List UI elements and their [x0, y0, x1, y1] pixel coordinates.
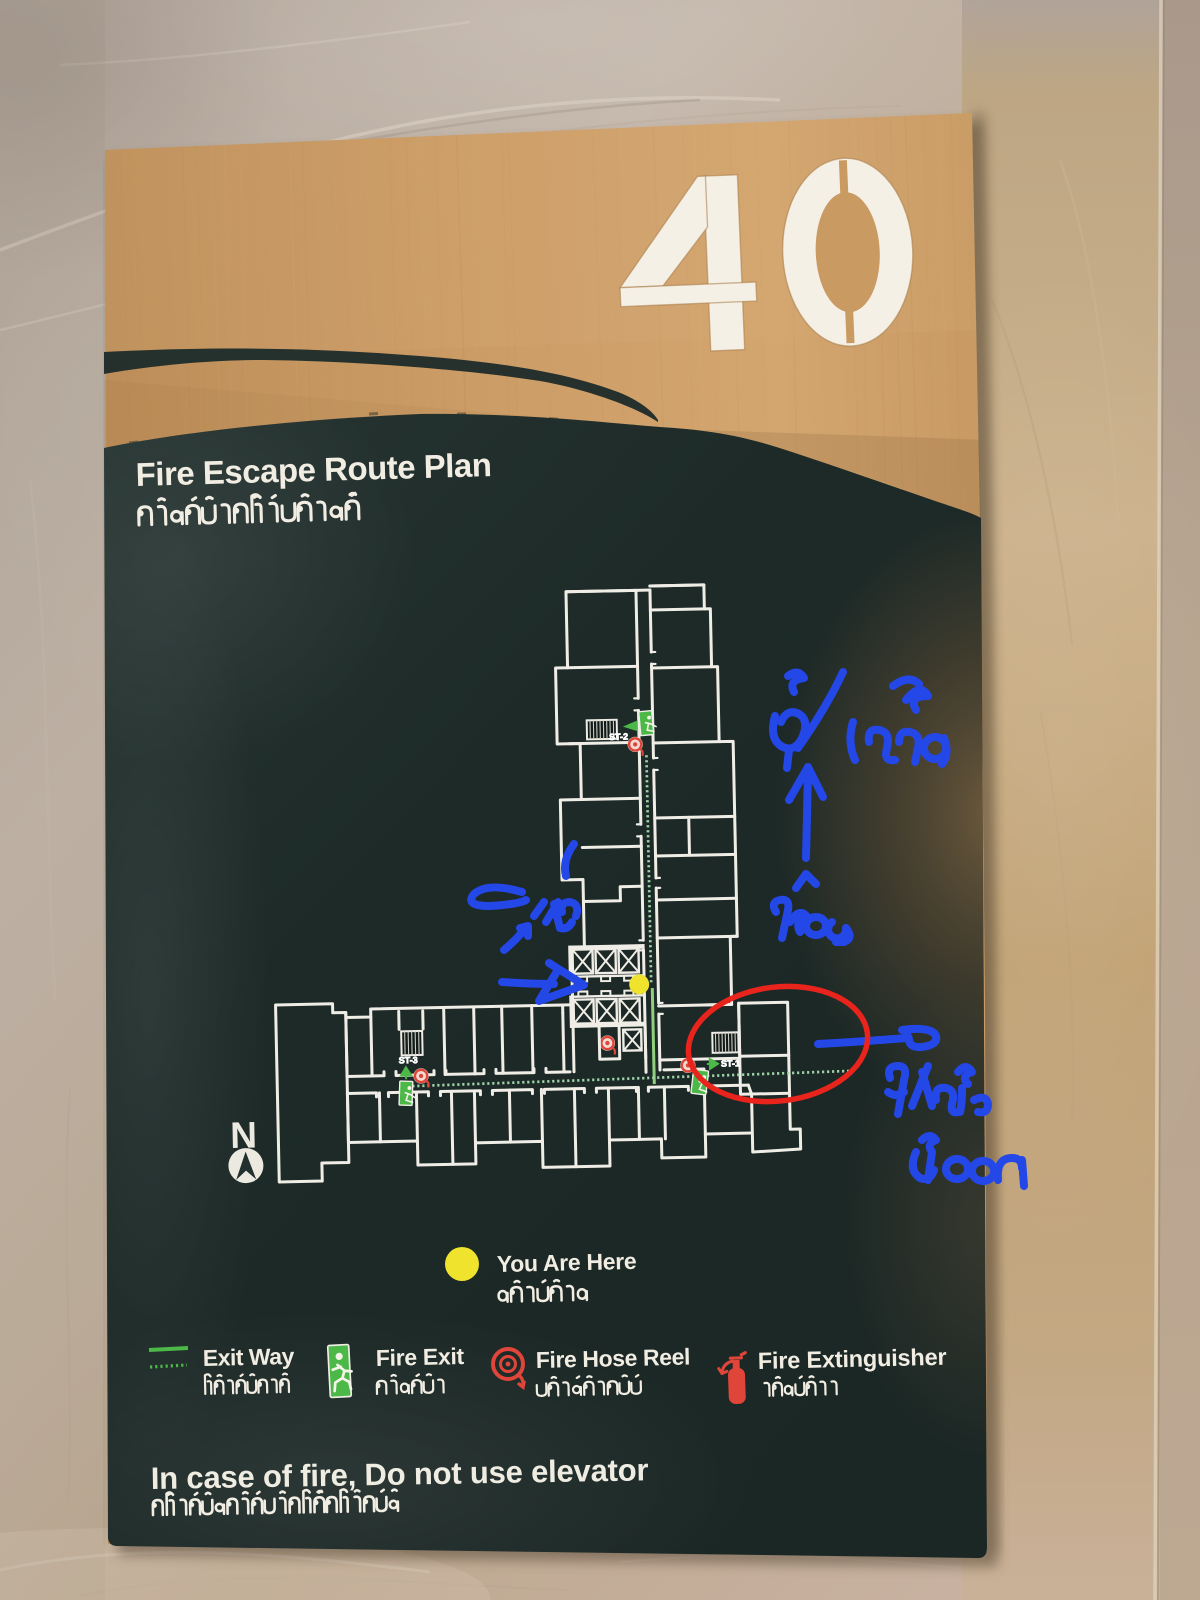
- svg-text:You Are Here: You Are Here: [497, 1248, 637, 1277]
- svg-text:Fire Extinguisher: Fire Extinguisher: [758, 1344, 947, 1374]
- svg-text:ST-3: ST-3: [399, 1055, 418, 1065]
- svg-text:Fire Exit: Fire Exit: [376, 1343, 465, 1371]
- svg-text:Fire Hose Reel: Fire Hose Reel: [536, 1344, 691, 1373]
- svg-text:Exit Way: Exit Way: [203, 1343, 295, 1371]
- svg-text:ST-2: ST-2: [609, 732, 628, 742]
- svg-text:ST-1: ST-1: [721, 1058, 740, 1068]
